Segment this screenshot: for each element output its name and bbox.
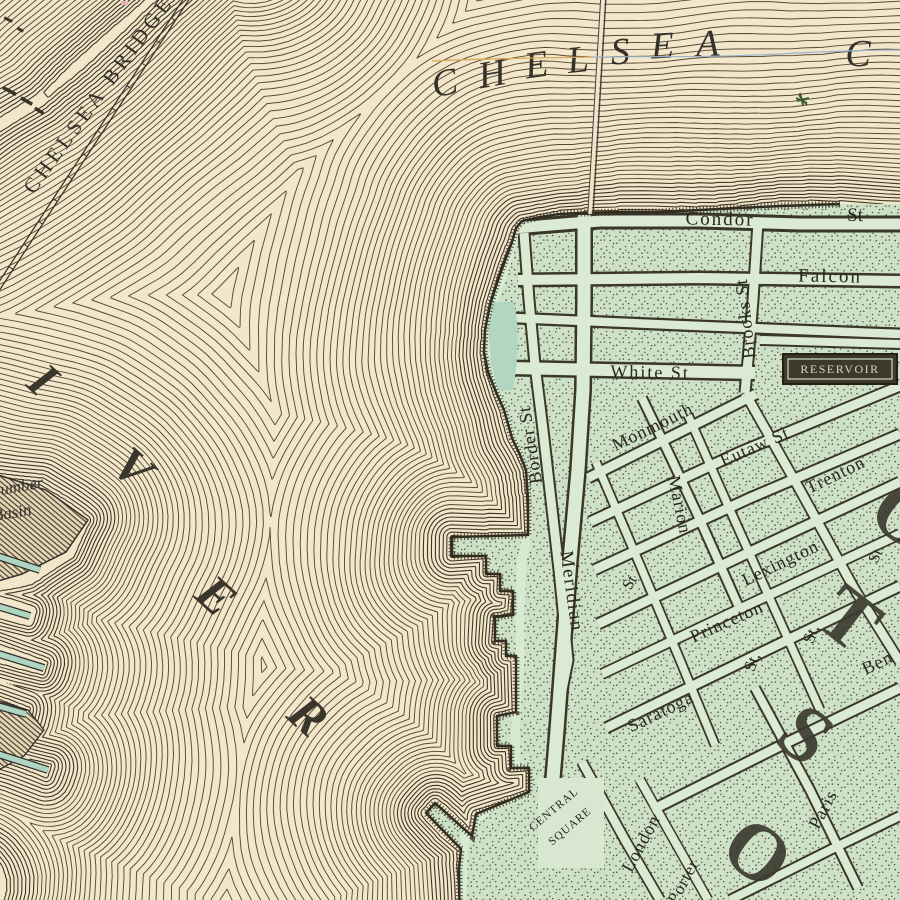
svg-text:St: St — [847, 205, 864, 226]
svg-text:S: S — [609, 30, 631, 73]
svg-text:White St: White St — [610, 361, 690, 382]
svg-text:Falcon: Falcon — [798, 265, 862, 287]
svg-text:RESERVOIR: RESERVOIR — [800, 362, 879, 376]
svg-text:E: E — [649, 24, 675, 67]
svg-text:C: C — [845, 33, 871, 75]
svg-text:Condor: Condor — [685, 208, 754, 230]
svg-text:L: L — [564, 38, 590, 82]
svg-text:A: A — [692, 23, 720, 66]
